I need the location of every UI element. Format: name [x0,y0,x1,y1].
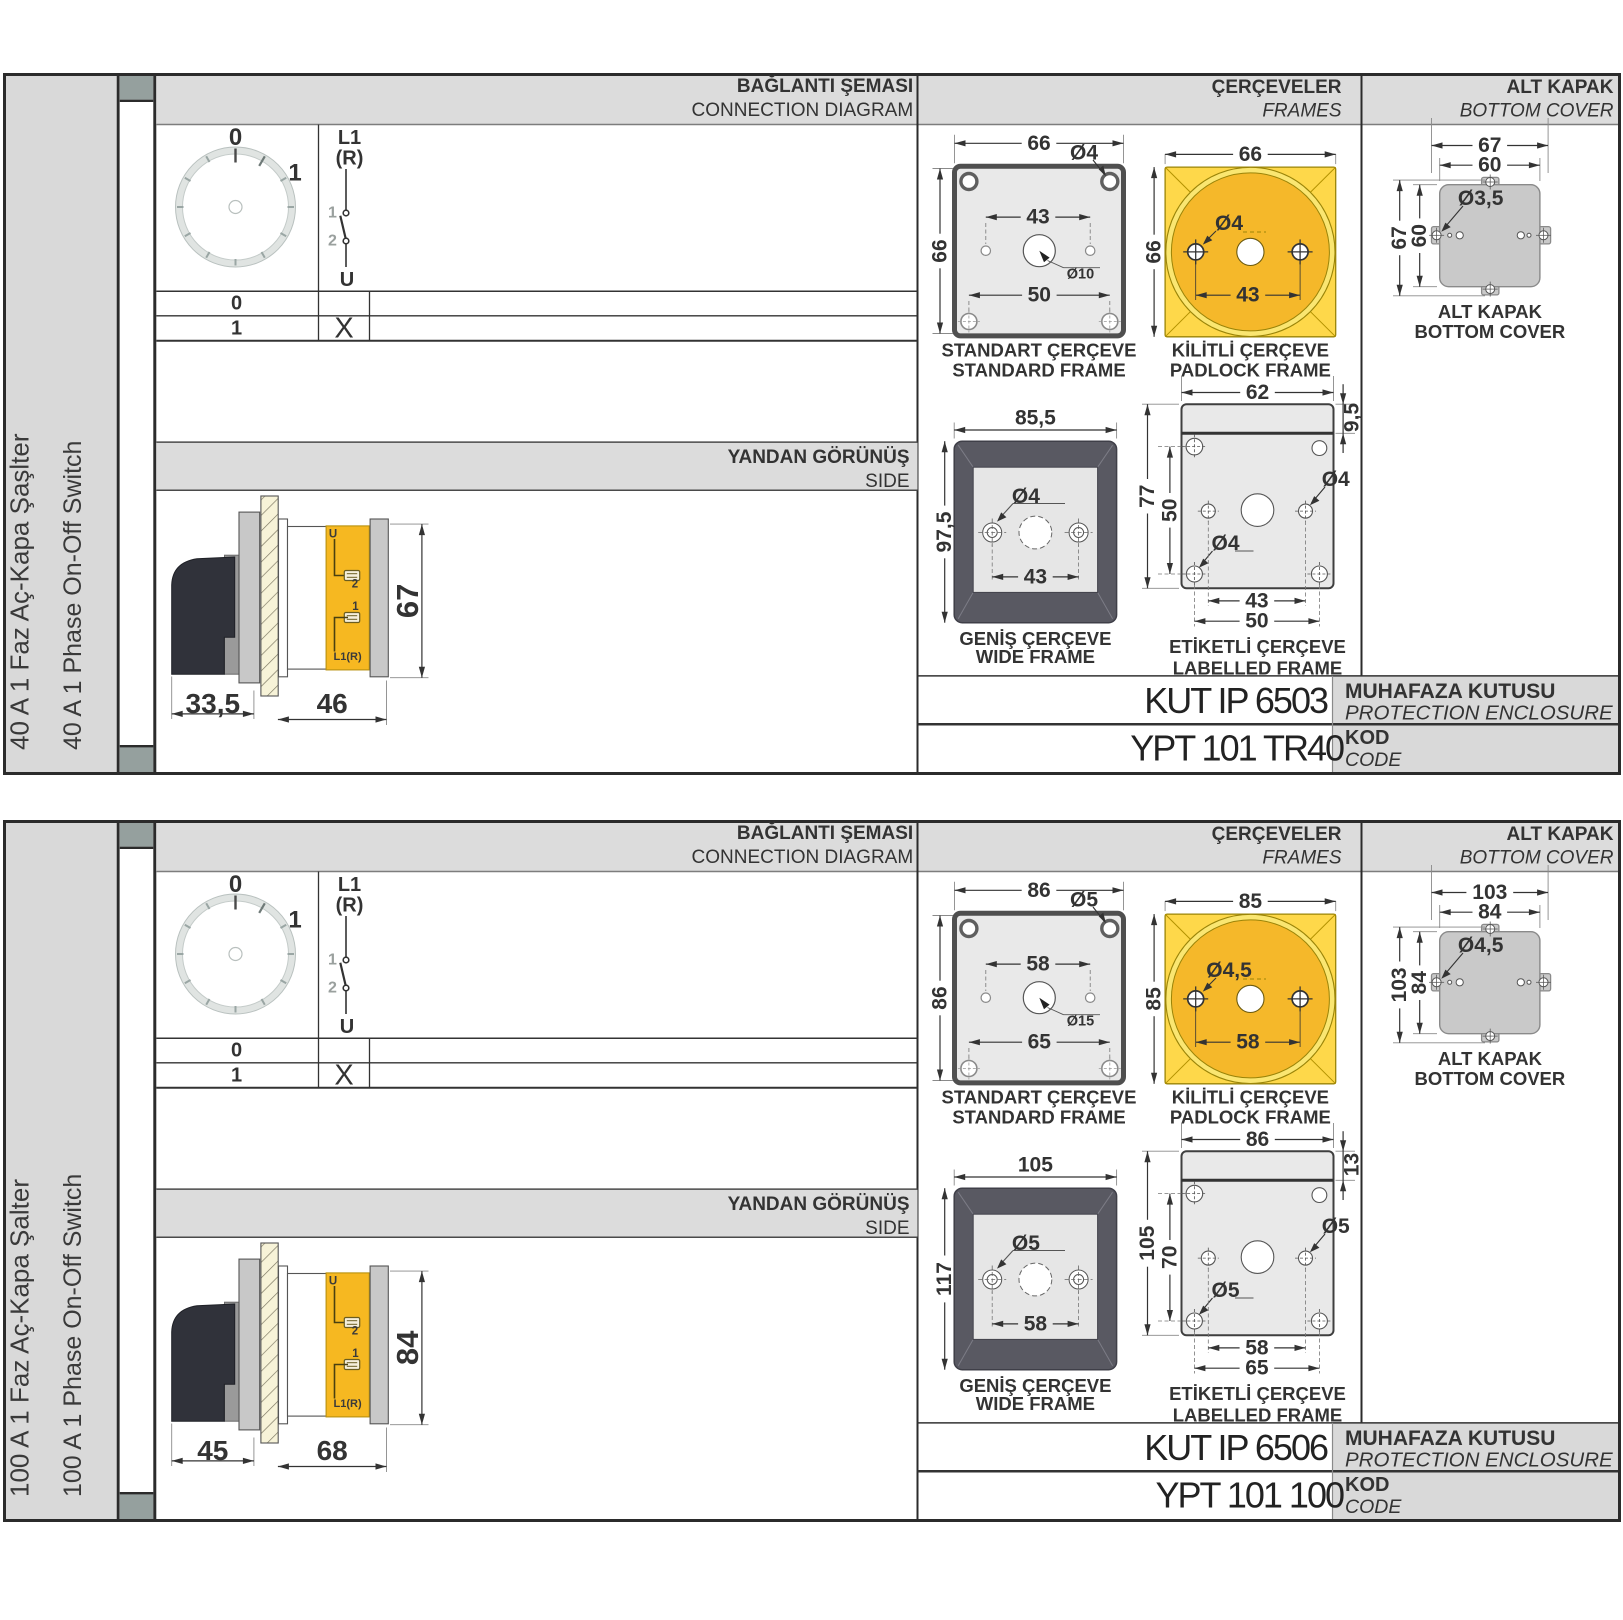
svg-text:105: 105 [1017,1154,1052,1177]
svg-text:FRAMES: FRAMES [1262,848,1342,869]
svg-text:YPT 101 100: YPT 101 100 [1155,1475,1343,1516]
svg-text:1: 1 [352,601,359,613]
svg-text:77: 77 [1136,484,1159,507]
svg-text:Ø4: Ø4 [1211,532,1239,555]
svg-text:58: 58 [1023,1312,1047,1335]
svg-text:66: 66 [1027,131,1050,154]
svg-text:50: 50 [1245,609,1268,632]
svg-text:BOTTOM COVER: BOTTOM COVER [1414,1068,1565,1089]
svg-text:U: U [339,1016,353,1038]
svg-text:0: 0 [228,124,241,151]
svg-text:66: 66 [1238,142,1261,165]
svg-text:66: 66 [928,239,951,262]
svg-text:68: 68 [316,1435,347,1466]
svg-text:YPT 101 TR40: YPT 101 TR40 [1130,727,1344,768]
svg-text:ALT KAPAK: ALT KAPAK [1506,77,1613,98]
svg-text:CONNECTION DIAGRAM: CONNECTION DIAGRAM [691,100,913,121]
svg-text:SIDE: SIDE [865,471,909,492]
svg-text:L1: L1 [337,127,360,149]
svg-text:66: 66 [1142,240,1165,263]
svg-text:ETİKETLİ ÇERÇEVE: ETİKETLİ ÇERÇEVE [1169,1383,1346,1404]
svg-text:117: 117 [933,1262,956,1296]
svg-text:40 A 1 Faz Aç-Kapa Şaşlter: 40 A 1 Faz Aç-Kapa Şaşlter [4,433,34,750]
svg-text:X: X [334,312,353,344]
svg-text:85: 85 [1238,890,1262,913]
svg-text:ALT KAPAK: ALT KAPAK [1506,824,1613,845]
svg-text:43: 43 [1236,283,1259,306]
svg-text:L1(R): L1(R) [333,651,361,663]
svg-text:KUT IP 6503: KUT IP 6503 [1144,680,1328,721]
svg-text:100 A 1 Faz Aç-Kapa Şalter: 100 A 1 Faz Aç-Kapa Şalter [4,1179,34,1497]
svg-text:9,5: 9,5 [1340,402,1363,432]
svg-text:CODE: CODE [1345,749,1402,771]
svg-text:0: 0 [228,871,241,898]
svg-text:U: U [328,528,336,540]
svg-text:33,5: 33,5 [185,687,240,718]
svg-text:FRAMES: FRAMES [1262,100,1342,121]
svg-text:BAĞLANTI ŞEMASI: BAĞLANTI ŞEMASI [736,75,912,97]
svg-text:(R): (R) [335,147,363,169]
svg-text:WIDE FRAME: WIDE FRAME [975,646,1094,667]
svg-text:Ø4: Ø4 [1321,468,1349,491]
svg-text:1: 1 [328,204,337,221]
svg-text:2: 2 [351,1326,357,1338]
svg-text:STANDART ÇERÇEVE: STANDART ÇERÇEVE [941,339,1136,360]
svg-text:Ø10: Ø10 [1066,266,1093,282]
svg-text:STANDARD FRAME: STANDARD FRAME [952,1107,1125,1128]
svg-text:84: 84 [390,1330,425,1365]
svg-text:50: 50 [1158,498,1181,521]
svg-text:KUT IP 6506: KUT IP 6506 [1144,1427,1328,1468]
svg-text:85: 85 [1142,987,1165,1011]
svg-text:2: 2 [351,578,357,590]
svg-text:MUHAFAZA KUTUSU: MUHAFAZA KUTUSU [1345,680,1555,703]
svg-text:CODE: CODE [1345,1496,1402,1518]
svg-text:1: 1 [288,159,301,186]
svg-text:1: 1 [230,317,241,339]
svg-text:97,5: 97,5 [933,511,956,552]
svg-text:ÇERÇEVELER: ÇERÇEVELER [1211,77,1341,98]
svg-text:65: 65 [1245,1357,1269,1380]
svg-text:Ø5: Ø5 [1321,1215,1349,1238]
svg-text:WIDE FRAME: WIDE FRAME [975,1393,1094,1414]
svg-text:58: 58 [1236,1031,1260,1054]
svg-text:43: 43 [1023,565,1046,588]
svg-text:PROTECTION ENCLOSURE: PROTECTION ENCLOSURE [1345,1449,1613,1472]
svg-text:MUHAFAZA KUTUSU: MUHAFAZA KUTUSU [1345,1427,1555,1450]
svg-text:100 A 1 Phase On-Off Switch: 100 A 1 Phase On-Off Switch [59,1174,87,1497]
svg-text:STANDART ÇERÇEVE: STANDART ÇERÇEVE [941,1087,1136,1108]
svg-text:YANDAN GÖRÜNÜŞ: YANDAN GÖRÜNÜŞ [727,1194,909,1215]
svg-text:Ø5: Ø5 [1211,1279,1239,1302]
svg-text:0: 0 [230,292,241,314]
svg-text:U: U [328,1276,336,1288]
svg-text:YANDAN GÖRÜNÜŞ: YANDAN GÖRÜNÜŞ [727,447,909,468]
svg-text:1: 1 [328,952,337,969]
svg-text:105: 105 [1136,1225,1159,1260]
svg-text:PADLOCK FRAME: PADLOCK FRAME [1169,1107,1330,1128]
svg-text:65: 65 [1027,1031,1051,1054]
svg-text:13: 13 [1340,1153,1363,1176]
svg-text:40 A 1 Phase On-Off Switch: 40 A 1 Phase On-Off Switch [59,440,87,749]
svg-text:L1: L1 [337,874,360,896]
svg-text:1: 1 [352,1348,359,1360]
svg-text:1: 1 [230,1064,241,1086]
svg-text:62: 62 [1245,381,1268,404]
svg-text:Ø4: Ø4 [1214,212,1242,235]
svg-text:86: 86 [1027,879,1050,902]
svg-text:BAĞLANTI ŞEMASI: BAĞLANTI ŞEMASI [736,822,912,844]
svg-text:BOTTOM COVER: BOTTOM COVER [1414,320,1565,341]
svg-text:KOD: KOD [1345,727,1389,749]
svg-text:2: 2 [328,232,337,249]
svg-text:2: 2 [328,980,337,997]
svg-text:60: 60 [1478,153,1501,176]
svg-text:PADLOCK FRAME: PADLOCK FRAME [1169,359,1330,380]
svg-text:46: 46 [316,687,347,718]
svg-text:L1(R): L1(R) [333,1398,361,1410]
svg-text:BOTTOM COVER: BOTTOM COVER [1459,100,1613,121]
svg-text:X: X [334,1060,353,1092]
svg-text:ETİKETLİ ÇERÇEVE: ETİKETLİ ÇERÇEVE [1169,636,1346,657]
svg-text:67: 67 [390,583,425,617]
svg-text:STANDARD FRAME: STANDARD FRAME [952,359,1125,380]
svg-text:KİLİTLİ ÇERÇEVE: KİLİTLİ ÇERÇEVE [1171,1087,1328,1108]
svg-text:ÇERÇEVELER: ÇERÇEVELER [1211,824,1341,845]
svg-text:84: 84 [1478,901,1502,924]
svg-text:Ø3,5: Ø3,5 [1457,186,1503,209]
svg-text:Ø4,5: Ø4,5 [1457,934,1503,957]
svg-text:PROTECTION ENCLOSURE: PROTECTION ENCLOSURE [1345,701,1613,724]
svg-text:Ø4: Ø4 [1011,485,1039,508]
svg-text:0: 0 [230,1040,241,1062]
svg-text:58: 58 [1026,953,1050,976]
svg-text:CONNECTION DIAGRAM: CONNECTION DIAGRAM [691,847,913,868]
svg-text:70: 70 [1158,1246,1181,1269]
svg-text:1: 1 [288,907,301,934]
svg-text:85,5: 85,5 [1014,406,1055,429]
svg-text:(R): (R) [335,895,363,917]
svg-text:Ø5: Ø5 [1011,1232,1039,1255]
svg-text:ALT KAPAK: ALT KAPAK [1437,300,1542,321]
svg-text:U: U [339,269,353,291]
svg-text:BOTTOM COVER: BOTTOM COVER [1459,848,1613,869]
svg-text:43: 43 [1026,205,1049,228]
svg-text:86: 86 [1245,1128,1268,1151]
svg-text:45: 45 [197,1435,228,1466]
svg-text:60: 60 [1408,224,1431,247]
svg-text:SIDE: SIDE [865,1218,909,1239]
svg-text:84: 84 [1408,971,1431,995]
svg-text:ALT KAPAK: ALT KAPAK [1437,1048,1542,1069]
svg-text:KOD: KOD [1345,1474,1389,1496]
svg-text:KİLİTLİ ÇERÇEVE: KİLİTLİ ÇERÇEVE [1171,339,1328,360]
svg-text:86: 86 [928,986,951,1009]
svg-text:Ø15: Ø15 [1066,1013,1093,1029]
svg-text:50: 50 [1027,283,1050,306]
